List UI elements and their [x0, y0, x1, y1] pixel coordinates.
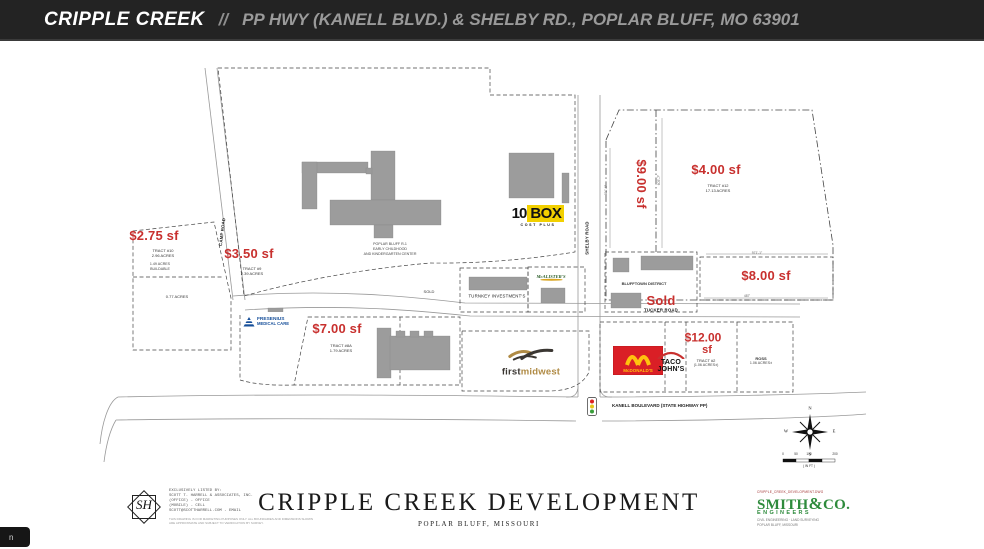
site-plan-page: CRIPPLE CREEK // PP HWY (KANELL BLVD.) &…: [0, 0, 984, 549]
tenbox-tagline: COST PLUS: [506, 223, 570, 227]
mcdonalds-wordmark: McDONALD'S: [623, 368, 653, 373]
price-label-800: $8.00 sf: [741, 269, 790, 283]
fresenius-logo: FRESENIUS MEDICAL CARE: [241, 312, 305, 332]
mcalisters-logo: McALISTER'S: [536, 274, 565, 281]
tract9-acres: 2.39 ACRES: [241, 272, 263, 276]
smithco-address-2: POPLAR BLUFF, MISSOURI: [757, 523, 850, 527]
dim-label-605: 605'-7": [658, 175, 662, 186]
sh-logo: SH: [129, 492, 159, 522]
scale-unit-label: ( IN FT ): [803, 465, 815, 469]
listing-disclaimer: THIS DRAWING IS FOR MARKETING PURPOSES O…: [169, 518, 319, 526]
tract8a-acres: 1.79 ACRES: [330, 349, 352, 353]
smithco-co: CO.: [823, 497, 850, 513]
price-label-350: $3.50 sf: [224, 247, 273, 261]
tract10-note2: BUILDABLE: [150, 268, 170, 272]
mcalisters-swash: [540, 279, 562, 281]
dim-label-811: 811'-6": [605, 185, 609, 195]
school-label-3: AND KINDERGARTEN CENTER: [364, 253, 417, 257]
mcalisters-building: [541, 288, 565, 303]
scale-tick-0: 0: [782, 453, 784, 457]
development-subtitle: POPLAR BLUFF, MISSOURI: [418, 520, 540, 528]
tenbox-building: [509, 153, 554, 198]
fresenius-triangle-icon: [243, 316, 255, 328]
price-label-1200-sf: sf: [702, 344, 712, 356]
sold-small-label: SOLD: [424, 290, 435, 294]
tacojohns-arc-icon: [656, 351, 686, 359]
sub-parcel-acres: 0.77 ACRES: [166, 295, 188, 299]
tract12-acres: 17.13 ACRES: [706, 189, 731, 193]
shelby-road-label: SHELBY ROAD: [586, 221, 591, 254]
compass-west-label: W: [784, 430, 788, 435]
blufftown-building: [613, 258, 629, 272]
turnkey-label: TURNKEY INVESTMENT'S: [468, 295, 525, 300]
listing-line: SCOTT@SCOTTHARRELL.COM - EMAIL: [169, 509, 253, 514]
fresenius-line2: MEDICAL CARE: [257, 322, 289, 326]
development-title: CRIPPLE CREEK DEVELOPMENT: [258, 489, 700, 517]
scale-bar: [783, 459, 835, 462]
tract2-acres: (1.06 ACRES±): [694, 364, 719, 368]
retail-building: [377, 328, 391, 378]
tacojohns-line2: JOHN'S: [656, 366, 686, 373]
sold-label: Sold: [647, 294, 676, 308]
tacojohns-line1: TACO: [656, 359, 686, 366]
firstmidwest-midwest: midwest: [521, 367, 560, 378]
tacojohns-logo: TACO JOHN'S: [656, 351, 686, 373]
site-plan-drawing: [0, 0, 984, 549]
tenbox-box: BOX: [527, 205, 564, 222]
parcel-boundaries: [133, 68, 833, 392]
smithco-logo: CRIPPLE_CREEK_DEVELOPMENT.DWG SMITH&CO. …: [757, 491, 850, 527]
mcalisters-wordmark: McALISTER'S: [536, 274, 565, 279]
tucker-road-label: TUCKER ROAD: [644, 309, 678, 314]
dim-label-487: 487': [744, 295, 750, 299]
smithco-address-1: CIVIL ENGINEERING · LAND SURVEYING: [757, 518, 850, 522]
blufftown-label: BLUFFTOWN DISTRICT: [622, 282, 667, 286]
corner-overlay-tab[interactable]: n: [0, 527, 30, 547]
price-label-1200: $12.00: [685, 331, 722, 344]
scale-tick-100: 100: [806, 453, 811, 457]
sh-logo-initials: SH: [129, 497, 159, 513]
ross-acres: 1.06 ACRES±: [750, 362, 772, 366]
firstmidwest-logo: firstmidwest: [502, 347, 560, 378]
turnkey-building: [469, 277, 527, 290]
firstmidwest-waves-icon: [508, 347, 554, 362]
scale-tick-50: 50: [794, 453, 798, 457]
price-label-700: $7.00 sf: [312, 322, 361, 336]
traffic-light-icon: [587, 397, 597, 421]
compass-north-label: N: [808, 407, 811, 412]
price-label-400: $4.00 sf: [691, 163, 740, 177]
tract10-acres: 2.96 ACRES: [152, 254, 174, 258]
dim-label-971: 971'-1": [752, 252, 763, 256]
kanell-boulevard-label: KANELL BOULEVARD (STATE HIGHWAY PP): [612, 403, 707, 408]
tenbox-ten: 10: [512, 205, 527, 222]
listing-info-block: EXCLUSIVELY LISTED BY: SCOTT T. HARRELL …: [169, 489, 253, 514]
scale-tick-200: 200: [832, 453, 837, 457]
price-label-900: $9.00 sf: [634, 159, 648, 208]
firstmidwest-first: first: [502, 367, 521, 378]
compass-rose: [792, 414, 828, 450]
road-lines: [100, 68, 866, 462]
tenbox-logo: 10 BOX COST PLUS: [506, 205, 570, 227]
price-label-275: $2.75 sf: [129, 229, 178, 243]
drawing-file-label: CRIPPLE_CREEK_DEVELOPMENT.DWG: [757, 491, 850, 494]
compass-east-label: E: [833, 430, 836, 435]
